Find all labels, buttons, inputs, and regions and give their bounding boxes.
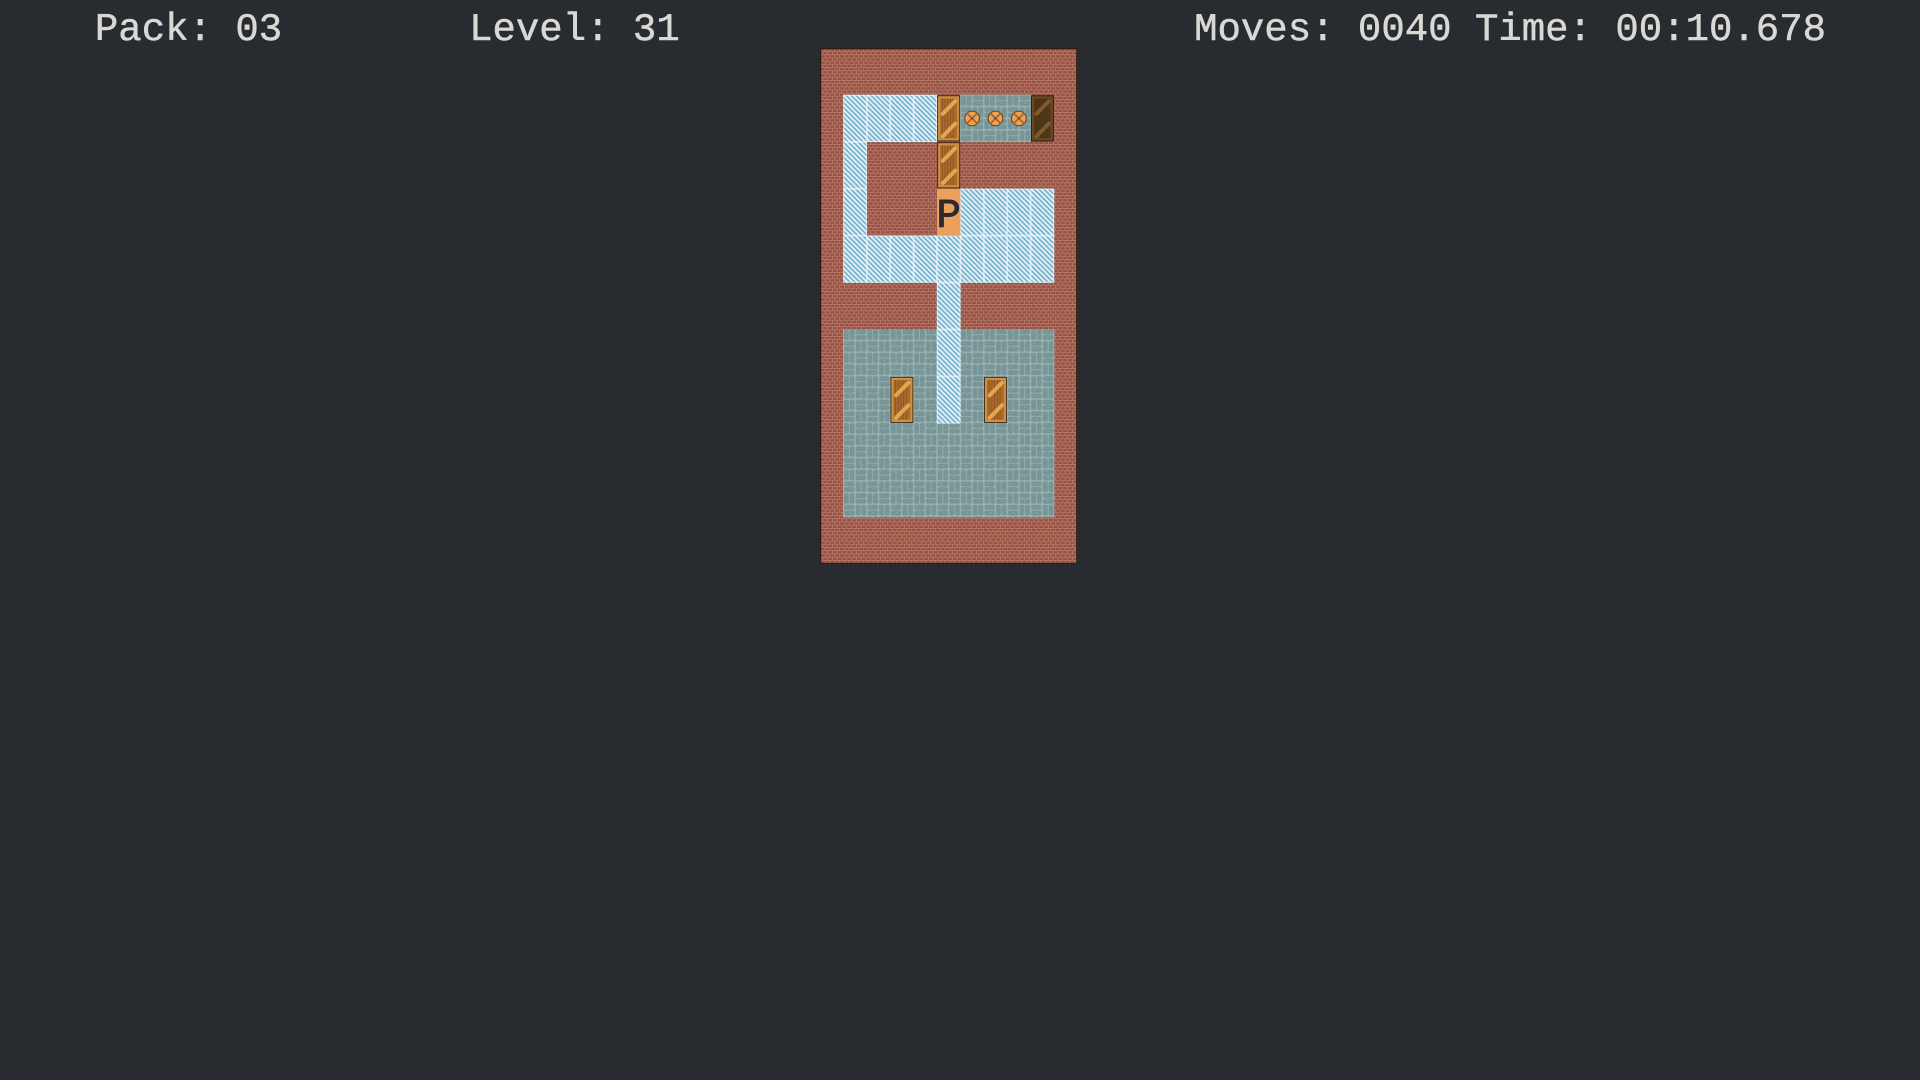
svg-text:P: P bbox=[936, 194, 961, 240]
